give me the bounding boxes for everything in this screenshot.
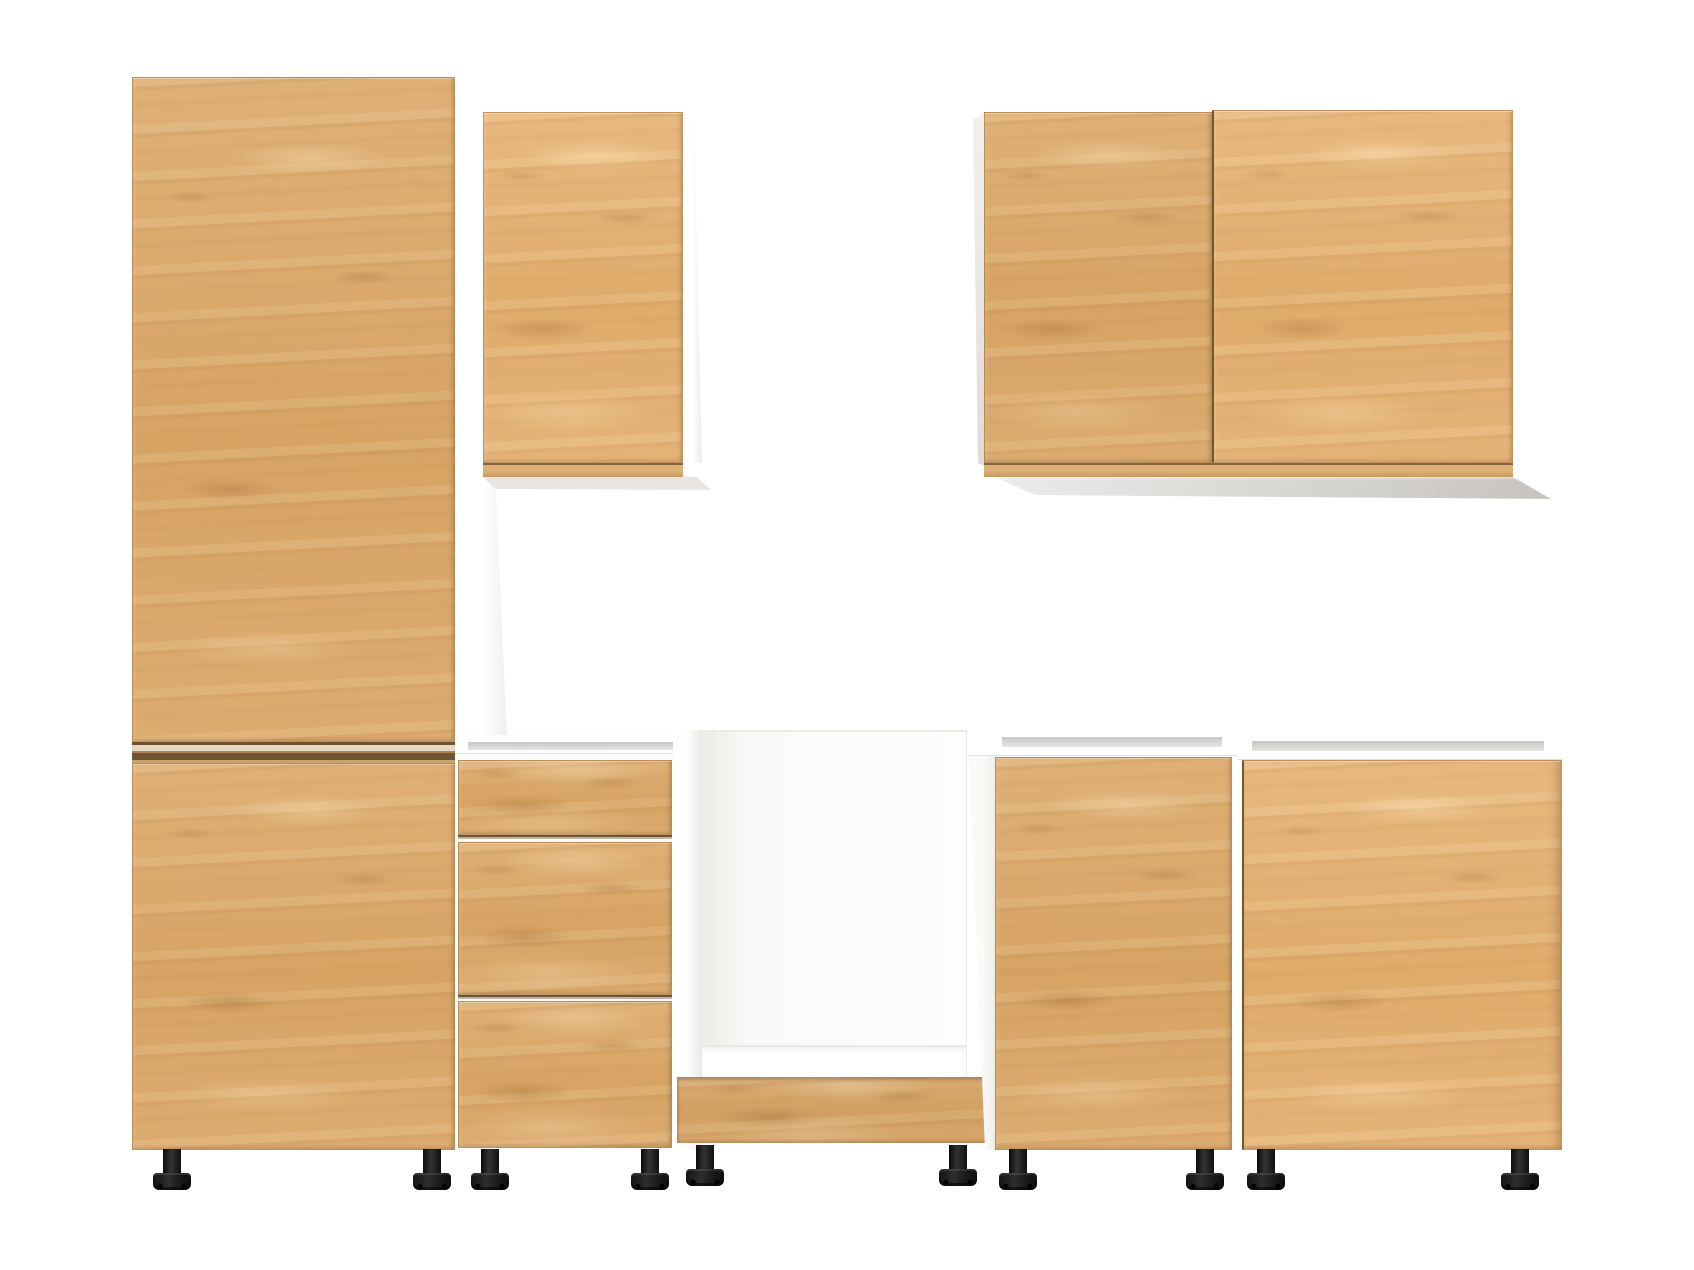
drawer-front-top bbox=[458, 760, 672, 835]
foot-base bbox=[1501, 1173, 1539, 1190]
foot-stem bbox=[1511, 1149, 1529, 1174]
tall-cabinet-lower-door bbox=[132, 763, 455, 1150]
foot-base bbox=[686, 1169, 724, 1186]
tall-cabinet-door-gap bbox=[132, 742, 455, 763]
adjustable-foot bbox=[939, 1145, 977, 1186]
foot-base bbox=[1186, 1173, 1224, 1190]
drawer-unit-top-opening bbox=[468, 742, 690, 750]
oven-housing-plinth bbox=[677, 1077, 990, 1143]
foot-base bbox=[1247, 1173, 1285, 1190]
foot-base bbox=[413, 1173, 451, 1190]
adjustable-foot bbox=[631, 1149, 669, 1190]
adjustable-foot bbox=[1501, 1149, 1539, 1190]
adjustable-foot bbox=[686, 1145, 724, 1186]
foot-stem bbox=[1009, 1149, 1027, 1174]
adjustable-foot bbox=[413, 1149, 451, 1190]
adjustable-foot bbox=[1247, 1149, 1285, 1190]
wall-cabinet-single-side-panel bbox=[683, 112, 703, 463]
base-cabinet-wide-top-opening bbox=[1252, 741, 1544, 751]
foot-stem bbox=[696, 1145, 714, 1170]
adjustable-foot bbox=[153, 1149, 191, 1190]
base-cabinet-narrow-top-opening bbox=[1002, 737, 1222, 747]
kitchen-set-render bbox=[0, 0, 1694, 1270]
wall-cabinet-single-door bbox=[483, 112, 683, 463]
adjustable-foot bbox=[999, 1149, 1037, 1190]
foot-stem bbox=[1257, 1149, 1275, 1174]
wall-cabinet-double-bottom-rail bbox=[984, 463, 1513, 477]
wall-cabinet-single-bottom-rail bbox=[483, 463, 683, 477]
wall-cabinet-double-left-door bbox=[984, 112, 1212, 463]
wall-cabinet-double-right-door bbox=[1212, 110, 1513, 463]
wall-cabinet-double-underside-shadow bbox=[995, 477, 1560, 503]
foot-base bbox=[999, 1173, 1037, 1190]
foot-stem bbox=[163, 1149, 181, 1174]
tall-cabinet-upper-door bbox=[132, 77, 455, 742]
foot-stem bbox=[481, 1149, 499, 1174]
foot-base bbox=[153, 1173, 191, 1190]
oven-housing-bottom-shelf bbox=[702, 1045, 966, 1080]
foot-stem bbox=[949, 1145, 967, 1170]
drawer-gap-1 bbox=[458, 835, 672, 842]
foot-stem bbox=[1196, 1149, 1214, 1174]
foot-base bbox=[631, 1173, 669, 1190]
wall-cabinet-double-left-side bbox=[973, 112, 984, 466]
oven-housing-left-panel bbox=[673, 730, 702, 1080]
oven-housing-back-panel bbox=[702, 730, 966, 1045]
drawer-front-bottom bbox=[458, 1001, 672, 1148]
foot-stem bbox=[423, 1149, 441, 1174]
wall-cabinet-single-underside-shadow bbox=[483, 477, 715, 491]
adjustable-foot bbox=[471, 1149, 509, 1190]
foot-base bbox=[471, 1173, 509, 1190]
foot-stem bbox=[641, 1149, 659, 1174]
drawer-front-middle bbox=[458, 842, 672, 995]
base-cabinet-narrow-door bbox=[995, 757, 1232, 1150]
base-cabinet-wide-door bbox=[1242, 760, 1562, 1150]
foot-base bbox=[939, 1169, 977, 1186]
adjustable-foot bbox=[1186, 1149, 1224, 1190]
